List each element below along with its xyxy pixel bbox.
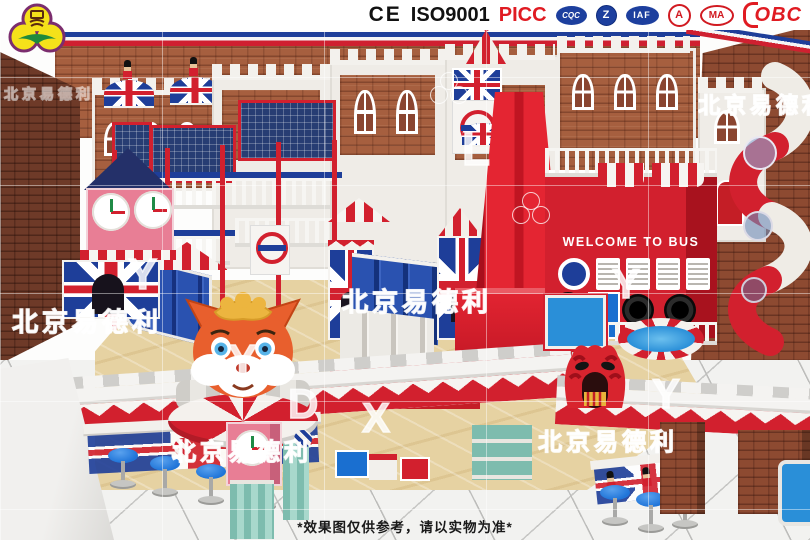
bus-slat-window: [656, 258, 680, 290]
red-cat-sculpture: [560, 330, 630, 410]
toy-soldier: [640, 467, 653, 488]
bus-sign: WELCOME TO BUS: [548, 235, 714, 249]
castle-battlement: [330, 49, 445, 65]
watermark-letter: L: [462, 122, 490, 176]
watermark-text: 北京易德利: [4, 84, 94, 104]
watermark-letter: X: [362, 394, 390, 442]
watermark-letter: Y: [612, 260, 640, 308]
promo-image: CE ISO9001 PICC CQC Z IAF A MA OBC: [0, 0, 810, 540]
play-box-red: [400, 457, 430, 481]
z-badge-icon: Z: [596, 5, 617, 26]
cqc-badge-icon: CQC: [556, 6, 587, 25]
tower-zigzag: [328, 240, 374, 250]
cone-tip: [483, 30, 490, 31]
ball-pool-water: [627, 326, 695, 352]
clock-face: [92, 193, 130, 231]
castle-window: [614, 74, 636, 110]
toy-soldier: [188, 57, 199, 77]
castle-window: [354, 90, 376, 134]
iso9001-mark: ISO9001: [411, 4, 490, 27]
watermark-letter: D: [288, 380, 318, 428]
picc-mark: PICC: [499, 4, 547, 27]
clock-face: [134, 191, 172, 229]
bus-awning: [598, 163, 644, 187]
yideli-logo-icon: [8, 3, 66, 55]
castle-window: [656, 74, 678, 110]
play-box-white: [369, 454, 397, 480]
bus-slat-window: [686, 258, 710, 290]
net-panel: [238, 100, 336, 161]
iaf-badge-icon: IAF: [626, 6, 659, 25]
watermark-flower-icon: [430, 72, 466, 108]
certification-row: CE ISO9001 PICC CQC Z IAF A MA OBC: [369, 2, 802, 28]
castle-window: [396, 90, 418, 134]
watermark-text: 北京易德利: [342, 282, 492, 319]
teal-steps: [472, 425, 532, 480]
toy-soldier: [122, 60, 133, 80]
watermark-letter: Y: [652, 370, 680, 418]
play-box-blue: [335, 450, 369, 478]
watermark-text: 北京易德利: [172, 432, 312, 467]
disclaimer-text: *效果图仅供参考，请以实物为准*: [0, 516, 810, 536]
playground-scene: WELCOME TO BUS: [0, 30, 810, 540]
ce-mark: CE: [369, 3, 402, 27]
unionjack-umbrella: [104, 80, 154, 108]
castle-battlement: [557, 36, 690, 53]
ma-badge-icon: MA: [700, 5, 734, 26]
a-badge-icon: A: [668, 4, 691, 27]
underground-roundel-icon: [256, 232, 288, 264]
obc-mark: OBC: [743, 2, 802, 28]
watermark-text: 北京易德利: [12, 302, 162, 339]
watermark-text: 北京易德利: [698, 88, 810, 120]
ball-pool: [618, 318, 704, 360]
watermark-text: 北京易德利: [538, 422, 678, 457]
watermark-letter: Y: [228, 336, 257, 386]
castle-window: [572, 74, 594, 110]
bar-stool: [106, 448, 140, 492]
castle-battlement: [212, 64, 330, 80]
watermark-letter: Y: [128, 250, 157, 300]
watermark-flower-icon: [512, 192, 548, 228]
bus-porthole: [558, 258, 590, 290]
bus-awning: [652, 163, 704, 187]
